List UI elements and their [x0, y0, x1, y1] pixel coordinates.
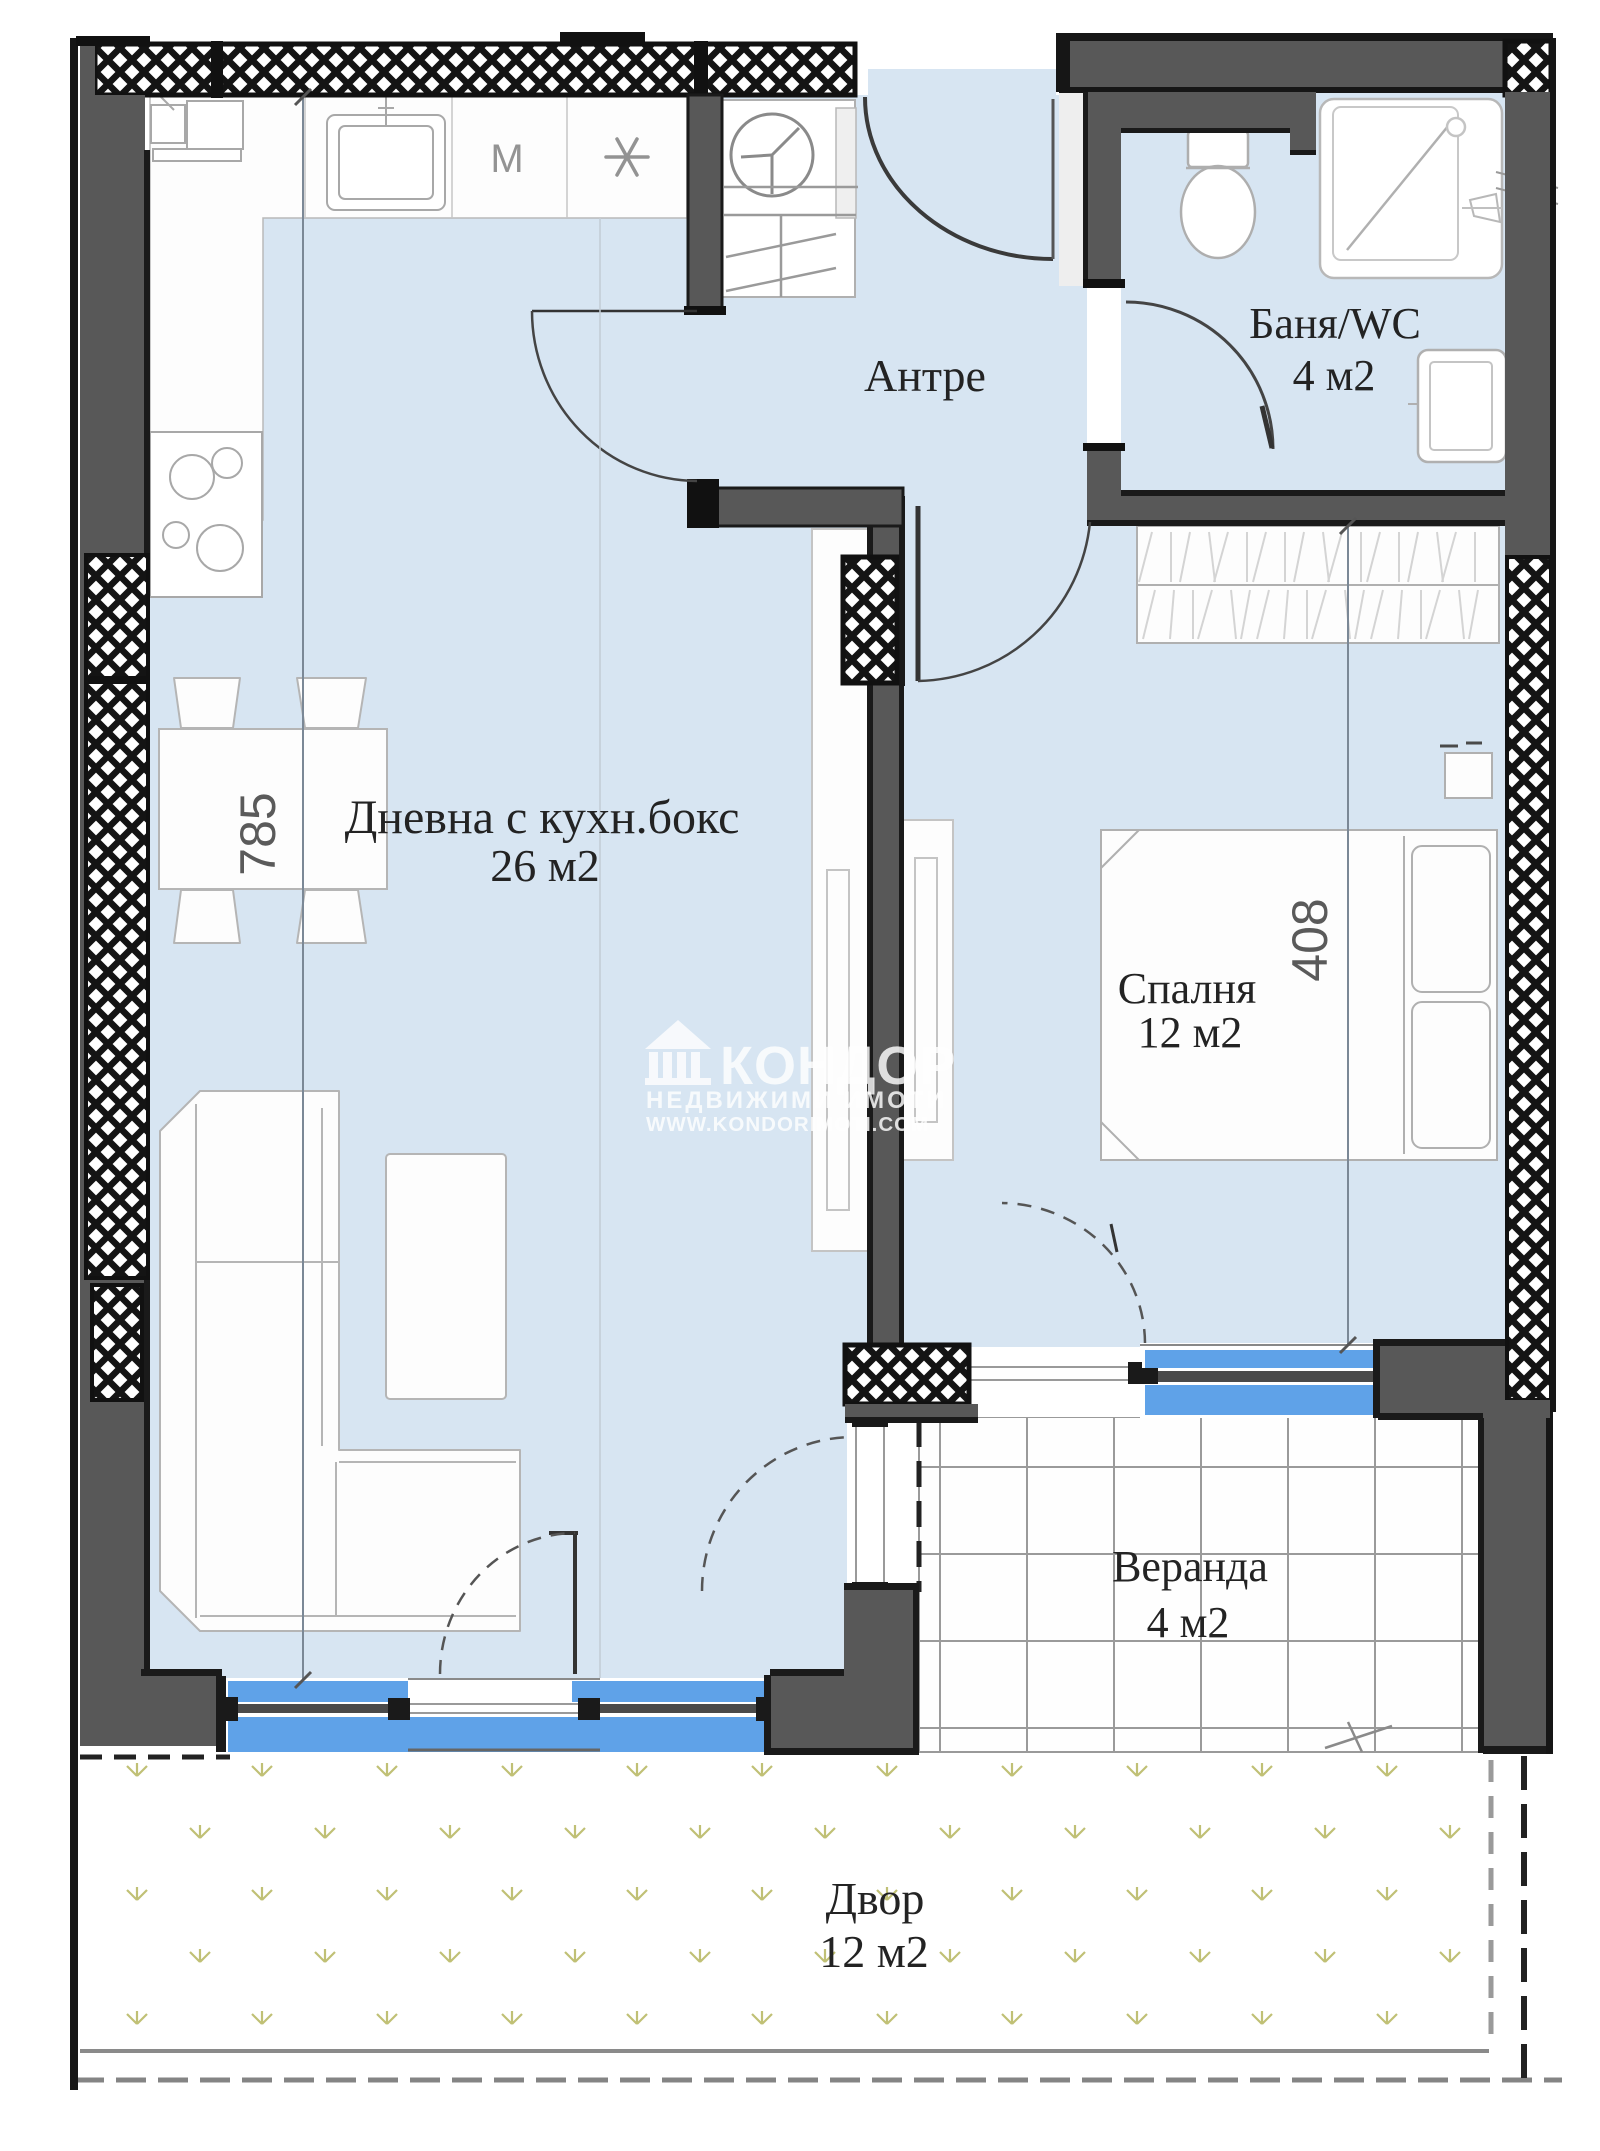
svg-text:408: 408	[1282, 898, 1338, 981]
svg-text:Дневна с кухн.бокс: Дневна с кухн.бокс	[345, 791, 740, 844]
svg-text:12 м2: 12 м2	[819, 1926, 929, 1977]
svg-text:M: M	[490, 137, 523, 181]
svg-text:НЕДВИЖИМИ ИМОТИ: НЕДВИЖИМИ ИМОТИ	[646, 1087, 947, 1114]
svg-text:Веранда: Веранда	[1112, 1542, 1268, 1591]
svg-text:4 м2: 4 м2	[1293, 351, 1376, 400]
svg-text:Спалня: Спалня	[1118, 964, 1257, 1013]
svg-text:12 м2: 12 м2	[1138, 1008, 1243, 1057]
svg-text:Баня/WC: Баня/WC	[1249, 299, 1421, 348]
svg-text:4 м2: 4 м2	[1147, 1598, 1230, 1647]
svg-text:Антре: Антре	[864, 350, 986, 401]
svg-text:26 м2: 26 м2	[490, 840, 600, 891]
svg-text:WWW.KONDORIMOTI.COM: WWW.KONDORIMOTI.COM	[646, 1113, 929, 1136]
svg-text:Двор: Двор	[826, 1873, 925, 1924]
svg-text:785: 785	[230, 792, 286, 875]
